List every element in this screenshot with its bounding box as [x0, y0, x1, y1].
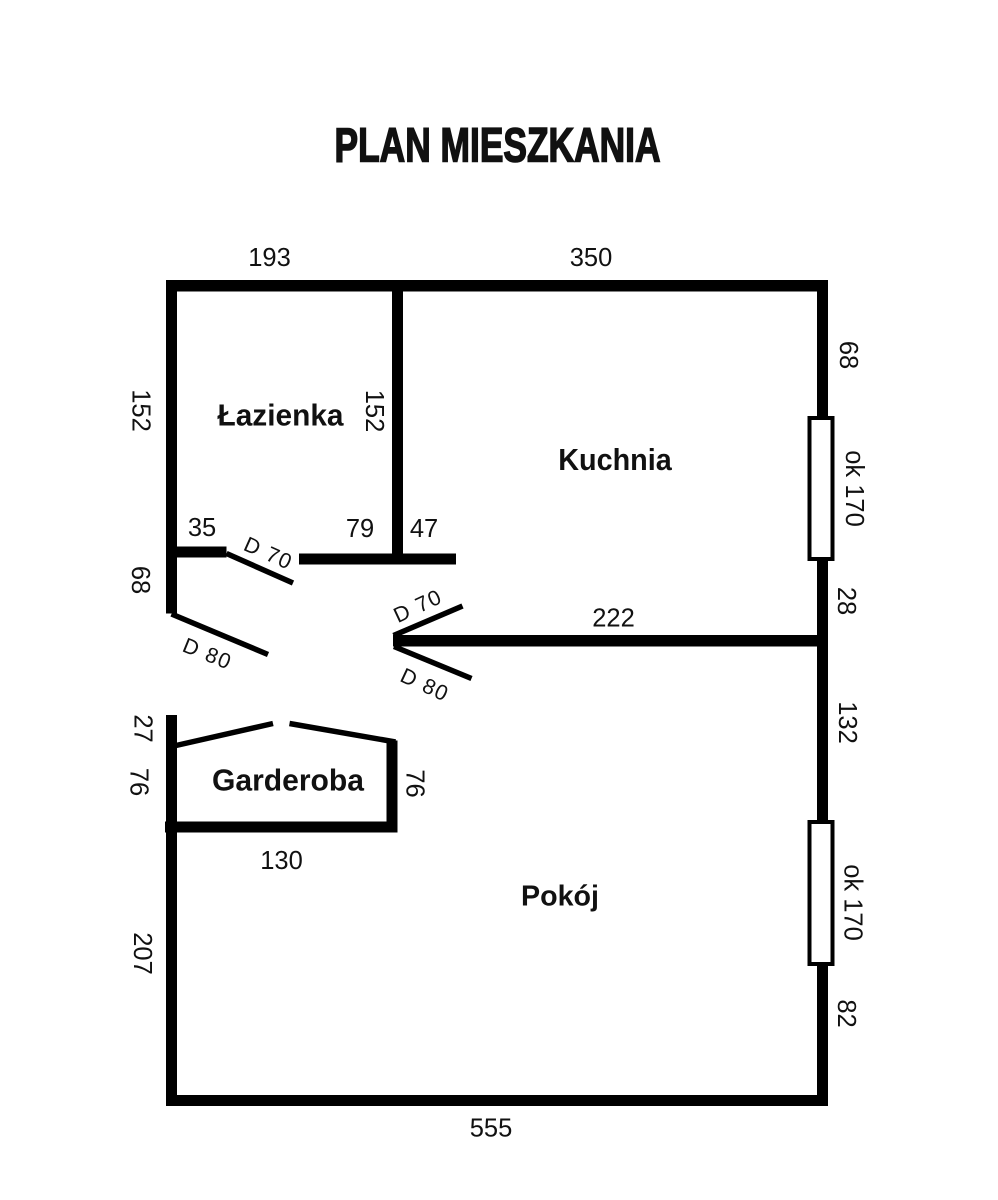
- svg-text:130: 130: [260, 847, 303, 875]
- svg-text:Kuchnia: Kuchnia: [558, 442, 672, 477]
- svg-text:28: 28: [832, 587, 860, 615]
- svg-text:350: 350: [570, 244, 613, 272]
- svg-text:ok 170: ok 170: [840, 450, 868, 527]
- svg-text:76: 76: [124, 768, 152, 796]
- svg-text:68: 68: [126, 566, 154, 594]
- svg-text:132: 132: [833, 701, 861, 744]
- svg-text:193: 193: [248, 244, 291, 272]
- svg-text:222: 222: [592, 605, 635, 633]
- svg-text:207: 207: [128, 932, 156, 975]
- svg-text:Łazienka: Łazienka: [218, 398, 345, 433]
- svg-text:555: 555: [470, 1115, 513, 1143]
- svg-text:76: 76: [400, 769, 428, 797]
- svg-text:27: 27: [128, 714, 156, 742]
- svg-text:152: 152: [126, 389, 154, 432]
- svg-text:PLAN MIESZKANIA: PLAN MIESZKANIA: [335, 119, 661, 172]
- svg-text:ok 170: ok 170: [838, 864, 866, 941]
- svg-text:79: 79: [346, 515, 374, 543]
- svg-text:68: 68: [834, 341, 862, 369]
- svg-text:47: 47: [410, 515, 438, 543]
- svg-text:82: 82: [832, 999, 860, 1027]
- svg-text:152: 152: [360, 390, 388, 433]
- svg-text:Pokój: Pokój: [521, 881, 599, 913]
- svg-text:Garderoba: Garderoba: [212, 763, 365, 798]
- svg-text:35: 35: [188, 514, 216, 542]
